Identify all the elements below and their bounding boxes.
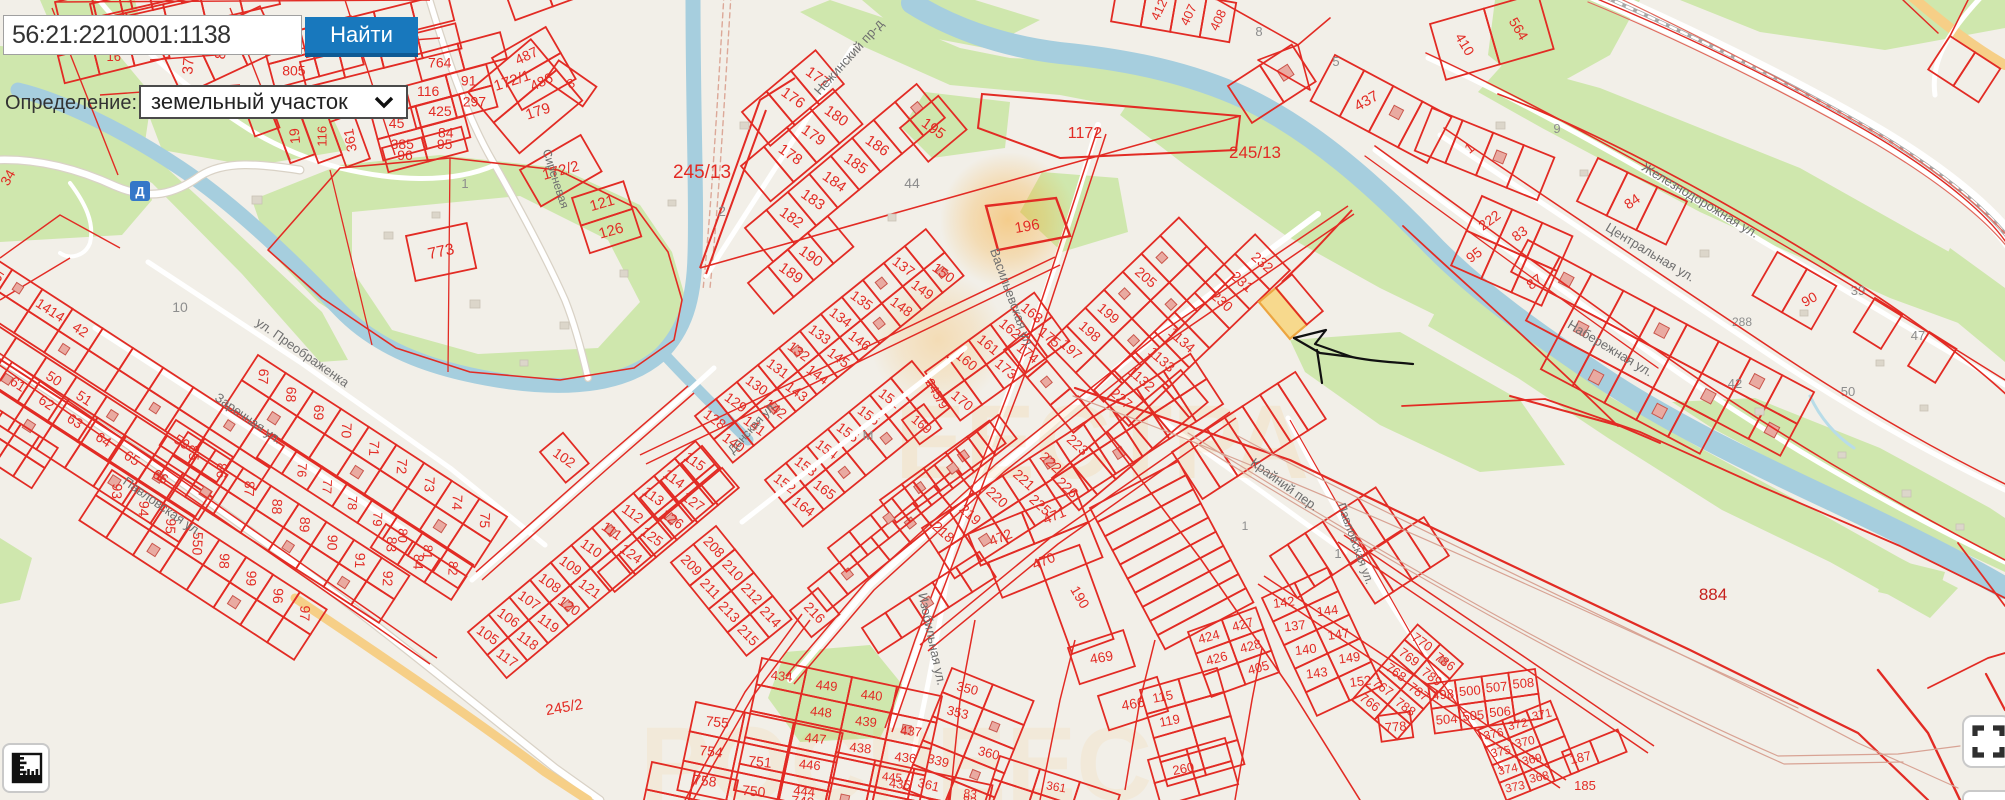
svg-text:76: 76 [294,463,310,478]
svg-text:751: 751 [748,752,773,770]
svg-text:149: 149 [1338,649,1361,667]
svg-text:19: 19 [286,127,303,144]
svg-text:1: 1 [1242,519,1249,533]
svg-text:445: 445 [881,769,903,785]
svg-text:750: 750 [741,782,766,800]
svg-text:42: 42 [1728,376,1742,391]
svg-text:116: 116 [314,126,329,147]
svg-text:437: 437 [899,722,922,739]
svg-text:92: 92 [380,570,397,587]
svg-text:185: 185 [1574,778,1596,793]
svg-text:116: 116 [417,83,440,99]
svg-text:449: 449 [815,677,838,694]
svg-text:78: 78 [345,495,361,510]
svg-text:425: 425 [428,103,452,119]
svg-text:86: 86 [213,463,230,480]
svg-text:69: 69 [311,404,328,421]
svg-text:755: 755 [705,713,730,731]
svg-text:434: 434 [770,667,793,684]
svg-text:764: 764 [428,54,452,70]
svg-text:439: 439 [854,713,877,730]
svg-text:83: 83 [963,786,978,800]
svg-text:97: 97 [297,605,314,622]
svg-text:245/13: 245/13 [1229,143,1281,162]
svg-text:884: 884 [1699,585,1727,604]
svg-text:10: 10 [172,299,188,315]
svg-text:91: 91 [352,552,369,569]
svg-text:88: 88 [269,498,286,515]
svg-text:96: 96 [397,147,413,163]
svg-text:504: 504 [1435,711,1458,728]
svg-text:84: 84 [410,554,427,571]
svg-text:М: М [863,428,874,443]
svg-text:79: 79 [370,512,386,527]
svg-text:447: 447 [804,730,827,747]
svg-text:74: 74 [449,494,466,511]
svg-text:778: 778 [1384,718,1407,735]
svg-text:47: 47 [1911,328,1925,343]
svg-text:8: 8 [1255,24,1262,39]
svg-text:68: 68 [283,386,300,403]
svg-text:1: 1 [1334,546,1341,561]
svg-text:39: 39 [1851,283,1865,298]
svg-text:1: 1 [461,176,468,191]
svg-text:77: 77 [319,479,335,494]
svg-text:500: 500 [1458,682,1481,699]
svg-text:508: 508 [1512,675,1535,692]
svg-text:37: 37 [179,57,197,75]
svg-text:83: 83 [383,536,400,553]
svg-text:245/13: 245/13 [673,162,731,183]
svg-text:2: 2 [718,203,726,219]
svg-text:507: 507 [1485,679,1508,696]
svg-text:749: 749 [790,792,815,800]
svg-text:9: 9 [1553,121,1560,136]
svg-text:140: 140 [1294,641,1317,659]
svg-text:440: 440 [860,687,883,704]
svg-text:89: 89 [297,516,314,533]
svg-text:87: 87 [241,480,258,497]
svg-text:90: 90 [324,534,341,551]
svg-text:144: 144 [1316,602,1339,620]
svg-text:448: 448 [809,703,832,720]
svg-text:438: 438 [849,739,872,756]
svg-text:143: 143 [1305,664,1328,682]
svg-text:67: 67 [255,368,272,385]
svg-text:95: 95 [437,136,453,152]
svg-text:70: 70 [338,422,355,439]
svg-text:96: 96 [270,588,287,605]
svg-text:72: 72 [394,458,411,475]
svg-text:98: 98 [216,553,233,570]
svg-text:Д: Д [135,184,145,199]
svg-text:5: 5 [1332,54,1339,69]
svg-text:137: 137 [1283,617,1306,635]
svg-text:73: 73 [421,476,438,493]
svg-text:297: 297 [463,94,487,110]
svg-text:75: 75 [477,512,494,529]
svg-text:71: 71 [366,440,383,457]
svg-text:1172: 1172 [1068,125,1103,142]
svg-text:754: 754 [699,742,724,760]
svg-text:44: 44 [904,175,920,191]
svg-text:288: 288 [1732,315,1752,329]
svg-text:85: 85 [186,445,203,462]
svg-text:99: 99 [243,570,260,587]
svg-text:805: 805 [282,62,306,78]
svg-text:147: 147 [1327,625,1350,643]
